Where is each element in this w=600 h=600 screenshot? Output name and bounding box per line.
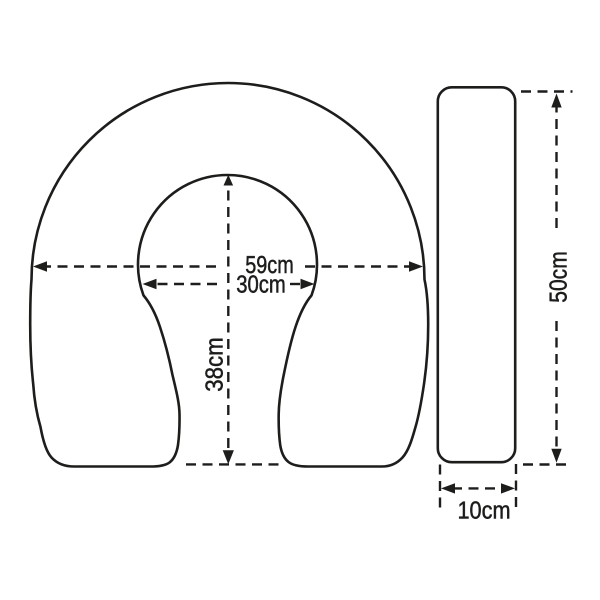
svg-text:50cm: 50cm [546, 251, 573, 303]
svg-text:10cm: 10cm [458, 497, 511, 524]
svg-text:30cm: 30cm [236, 272, 286, 299]
svg-text:38cm: 38cm [202, 337, 229, 392]
